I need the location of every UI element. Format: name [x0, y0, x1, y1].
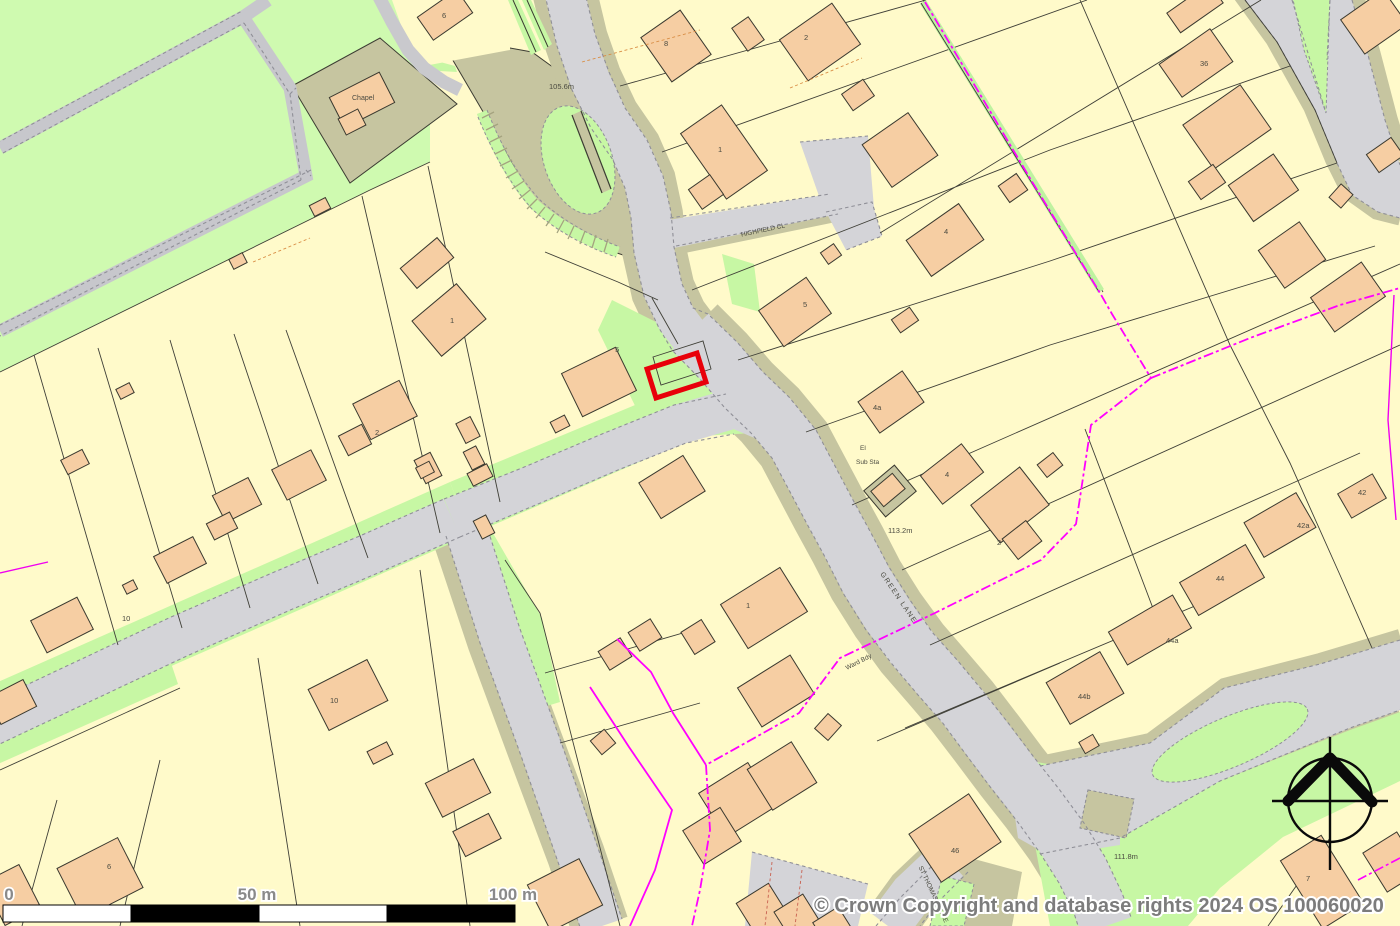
svg-text:113.2m: 113.2m [888, 526, 912, 535]
svg-text:8: 8 [664, 39, 668, 48]
svg-text:2: 2 [375, 428, 379, 437]
svg-text:10: 10 [122, 614, 130, 623]
svg-text:44b: 44b [1078, 692, 1091, 701]
svg-text:46: 46 [951, 846, 959, 855]
svg-text:5: 5 [615, 345, 619, 354]
svg-text:100 m: 100 m [489, 885, 537, 904]
svg-text:36: 36 [1200, 59, 1208, 68]
svg-text:6: 6 [107, 862, 111, 871]
svg-text:1: 1 [718, 145, 722, 154]
svg-text:1: 1 [746, 601, 750, 610]
svg-text:0: 0 [4, 885, 13, 904]
svg-text:111.8m: 111.8m [1114, 852, 1138, 861]
svg-text:2: 2 [997, 538, 1001, 547]
svg-text:El: El [860, 445, 866, 452]
svg-text:4a: 4a [873, 403, 882, 412]
svg-text:42: 42 [1358, 488, 1366, 497]
svg-text:4: 4 [945, 470, 949, 479]
svg-text:44: 44 [1216, 574, 1224, 583]
svg-text:6: 6 [442, 11, 446, 20]
svg-text:Chapel: Chapel [352, 95, 375, 102]
svg-text:4: 4 [944, 227, 948, 236]
svg-text:10: 10 [330, 696, 338, 705]
svg-text:7: 7 [1306, 874, 1310, 883]
svg-text:105.6m: 105.6m [549, 82, 574, 91]
svg-text:Sub Sta: Sub Sta [856, 459, 880, 466]
svg-text:2: 2 [804, 33, 808, 42]
svg-text:44a: 44a [1166, 636, 1179, 645]
svg-text:© Crown Copyright and database: © Crown Copyright and database rights 20… [814, 895, 1384, 917]
svg-text:5: 5 [803, 300, 807, 309]
svg-text:42a: 42a [1297, 521, 1310, 530]
svg-text:1: 1 [450, 316, 454, 325]
svg-text:50 m: 50 m [238, 885, 277, 904]
